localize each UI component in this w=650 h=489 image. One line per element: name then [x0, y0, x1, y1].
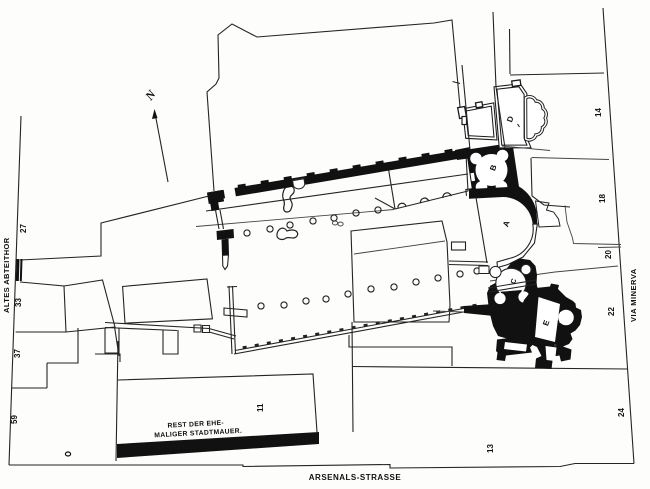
svg-text:20: 20	[604, 250, 613, 259]
svg-text:22: 22	[607, 307, 616, 316]
svg-text:13: 13	[486, 444, 495, 453]
svg-text:VIA MINERVA: VIA MINERVA	[629, 268, 638, 322]
svg-text:59: 59	[10, 415, 19, 424]
svg-text:37: 37	[13, 349, 22, 358]
svg-text:11: 11	[256, 403, 265, 412]
svg-text:33: 33	[14, 298, 23, 307]
svg-text:24: 24	[617, 408, 626, 417]
svg-text:ALTES ABTEITHOR: ALTES ABTEITHOR	[2, 237, 11, 313]
svg-text:27: 27	[19, 224, 28, 233]
svg-text:18: 18	[598, 194, 607, 203]
svg-text:14: 14	[594, 108, 603, 117]
svg-text:ARSENALS-STRASSE: ARSENALS-STRASSE	[309, 473, 402, 482]
